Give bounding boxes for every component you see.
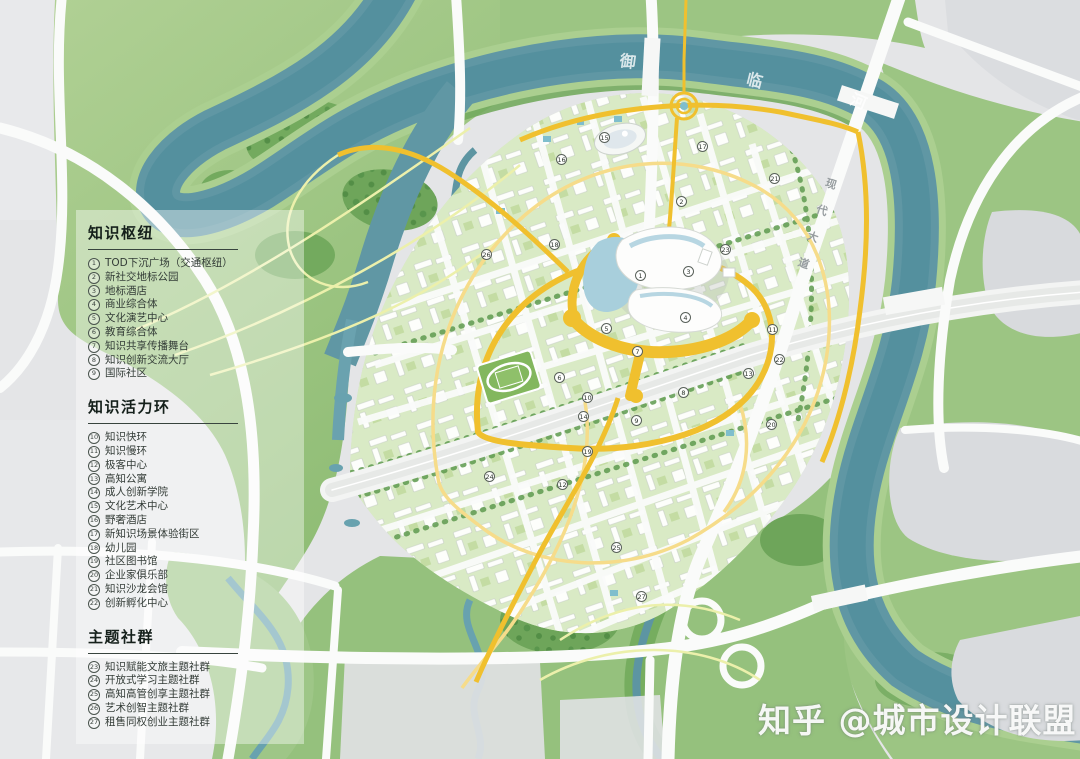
map-marker: 11 (767, 324, 778, 335)
legend-item-label: 新知识场景体验街区 (105, 528, 200, 542)
legend-item: 16野奢酒店 (88, 514, 294, 528)
legend-item: 22创新孵化中心 (88, 597, 294, 611)
map-marker: 12 (557, 479, 568, 490)
legend-item-number: 7 (88, 341, 100, 353)
legend-item-label: 幼儿园 (105, 542, 137, 556)
legend-item-number: 5 (88, 313, 100, 325)
map-marker: 6 (554, 372, 565, 383)
map-marker: 21 (769, 173, 780, 184)
legend-item: 4商业综合体 (88, 298, 294, 312)
legend-item-label: 野奢酒店 (105, 514, 147, 528)
legend-item: 24开放式学习主题社群 (88, 674, 294, 688)
map-marker: 8 (678, 387, 689, 398)
map-marker: 10 (582, 392, 593, 403)
legend-item-label: 知识快环 (105, 431, 147, 445)
legend-item-label: 知识赋能文旅主题社群 (105, 661, 210, 675)
legend-panel: 知识枢纽1TOD下沉广场（交通枢纽）2新社交地标公园3地标酒店4商业综合体5文化… (76, 210, 304, 744)
map-marker: 16 (556, 154, 567, 165)
legend-item: 13高知公寓 (88, 473, 294, 487)
map-marker: 2 (676, 196, 687, 207)
legend-item: 10知识快环 (88, 431, 294, 445)
legend-item-label: 社区图书馆 (105, 555, 158, 569)
legend-item: 14成人创新学院 (88, 486, 294, 500)
legend-item: 1TOD下沉广场（交通枢纽） (88, 257, 294, 271)
map-marker: 1 (635, 270, 646, 281)
map-marker: 22 (774, 354, 785, 365)
legend-item-number: 4 (88, 299, 100, 311)
legend-section: 知识活力环10知识快环11知识慢环12极客中心13高知公寓14成人创新学院15文… (88, 396, 294, 610)
legend-item-number: 23 (88, 661, 100, 673)
legend-item-number: 3 (88, 285, 100, 297)
map-marker: 5 (601, 323, 612, 334)
map-marker: 23 (720, 244, 731, 255)
legend-item-label: 新社交地标公园 (105, 271, 179, 285)
map-marker: 9 (631, 415, 642, 426)
river-label-char: 御 (618, 47, 637, 73)
watermark: 知乎 @城市设计联盟 (758, 694, 1077, 742)
legend-item: 18幼儿园 (88, 542, 294, 556)
legend-item: 5文化演艺中心 (88, 312, 294, 326)
legend-item-number: 2 (88, 272, 100, 284)
legend-section-title: 知识活力环 (88, 396, 238, 424)
legend-item: 3地标酒店 (88, 285, 294, 299)
legend-item: 23知识赋能文旅主题社群 (88, 661, 294, 675)
legend-item-number: 17 (88, 529, 100, 541)
legend-item-number: 13 (88, 473, 100, 485)
map-marker: 7 (632, 346, 643, 357)
legend-item-number: 11 (88, 446, 100, 458)
map-marker: 20 (766, 419, 777, 430)
map-marker: 17 (697, 141, 708, 152)
legend-item-label: 文化演艺中心 (105, 312, 168, 326)
legend-item-label: 国际社区 (105, 367, 147, 381)
legend-item-label: 商业综合体 (105, 298, 158, 312)
legend-item-label: 极客中心 (105, 459, 147, 473)
legend-item-number: 22 (88, 598, 100, 610)
legend-item: 12极客中心 (88, 459, 294, 473)
legend-item-number: 26 (88, 703, 100, 715)
legend-section: 知识枢纽1TOD下沉广场（交通枢纽）2新社交地标公园3地标酒店4商业综合体5文化… (88, 222, 294, 381)
legend-item-label: 高知公寓 (105, 473, 147, 487)
legend-item: 15文化艺术中心 (88, 500, 294, 514)
legend-item-label: 文化艺术中心 (105, 500, 168, 514)
legend-item: 17新知识场景体验街区 (88, 528, 294, 542)
legend-item-number: 12 (88, 460, 100, 472)
legend-item-label: 知识慢环 (105, 445, 147, 459)
map-marker: 24 (484, 471, 495, 482)
map-marker: 4 (680, 312, 691, 323)
legend-item-number: 18 (88, 542, 100, 554)
legend-item: 11知识慢环 (88, 445, 294, 459)
masterplan-screenshot: 1234567891011121314151617181920212223242… (0, 0, 1080, 759)
legend-item-label: 知识创新交流大厅 (105, 354, 189, 368)
map-marker: 18 (549, 239, 560, 250)
map-marker: 13 (743, 368, 754, 379)
legend-item-number: 19 (88, 556, 100, 568)
map-marker: 25 (611, 542, 622, 553)
legend-item-number: 10 (88, 432, 100, 444)
legend-item-label: 成人创新学院 (105, 486, 168, 500)
legend-item-number: 1 (88, 258, 100, 270)
legend-item-number: 16 (88, 515, 100, 527)
legend-item-label: 创新孵化中心 (105, 597, 168, 611)
legend-item-number: 20 (88, 570, 100, 582)
legend-item-label: 知识共享传播舞台 (105, 340, 189, 354)
legend-item-number: 25 (88, 689, 100, 701)
legend-item: 7知识共享传播舞台 (88, 340, 294, 354)
legend-item: 25高知高管创享主题社群 (88, 688, 294, 702)
legend-section-title: 主题社群 (88, 626, 238, 654)
legend-section-title: 知识枢纽 (88, 222, 238, 250)
legend-item-number: 24 (88, 675, 100, 687)
map-marker: 3 (683, 266, 694, 277)
legend-item-number: 15 (88, 501, 100, 513)
legend-item-number: 8 (88, 354, 100, 366)
legend-item-label: 教育综合体 (105, 326, 158, 340)
legend-item-label: 知识沙龙会馆 (105, 583, 168, 597)
legend-item: 2新社交地标公园 (88, 271, 294, 285)
legend-item: 21知识沙龙会馆 (88, 583, 294, 597)
legend-item-label: TOD下沉广场（交通枢纽） (105, 257, 233, 271)
legend-item: 27租售同权创业主题社群 (88, 716, 294, 730)
legend-item: 20企业家俱乐部 (88, 569, 294, 583)
legend-item-number: 9 (88, 368, 100, 380)
legend-item: 26艺术创智主题社群 (88, 702, 294, 716)
legend-item-label: 企业家俱乐部 (105, 569, 168, 583)
legend-item-label: 租售同权创业主题社群 (105, 716, 210, 730)
legend-item-number: 14 (88, 487, 100, 499)
legend-item: 19社区图书馆 (88, 555, 294, 569)
legend-item: 9国际社区 (88, 367, 294, 381)
map-marker: 15 (599, 132, 610, 143)
map-marker: 27 (636, 591, 647, 602)
legend-item-label: 高知高管创享主题社群 (105, 688, 210, 702)
map-marker: 19 (582, 446, 593, 457)
legend-item: 8知识创新交流大厅 (88, 354, 294, 368)
legend-section: 主题社群23知识赋能文旅主题社群24开放式学习主题社群25高知高管创享主题社群2… (88, 626, 294, 730)
legend-item-label: 开放式学习主题社群 (105, 674, 200, 688)
map-marker: 26 (481, 249, 492, 260)
legend-item-number: 27 (88, 717, 100, 729)
legend-item-number: 6 (88, 327, 100, 339)
map-marker: 14 (578, 411, 589, 422)
legend-item: 6教育综合体 (88, 326, 294, 340)
legend-item-label: 地标酒店 (105, 285, 147, 299)
legend-item-number: 21 (88, 584, 100, 596)
legend-item-label: 艺术创智主题社群 (105, 702, 189, 716)
